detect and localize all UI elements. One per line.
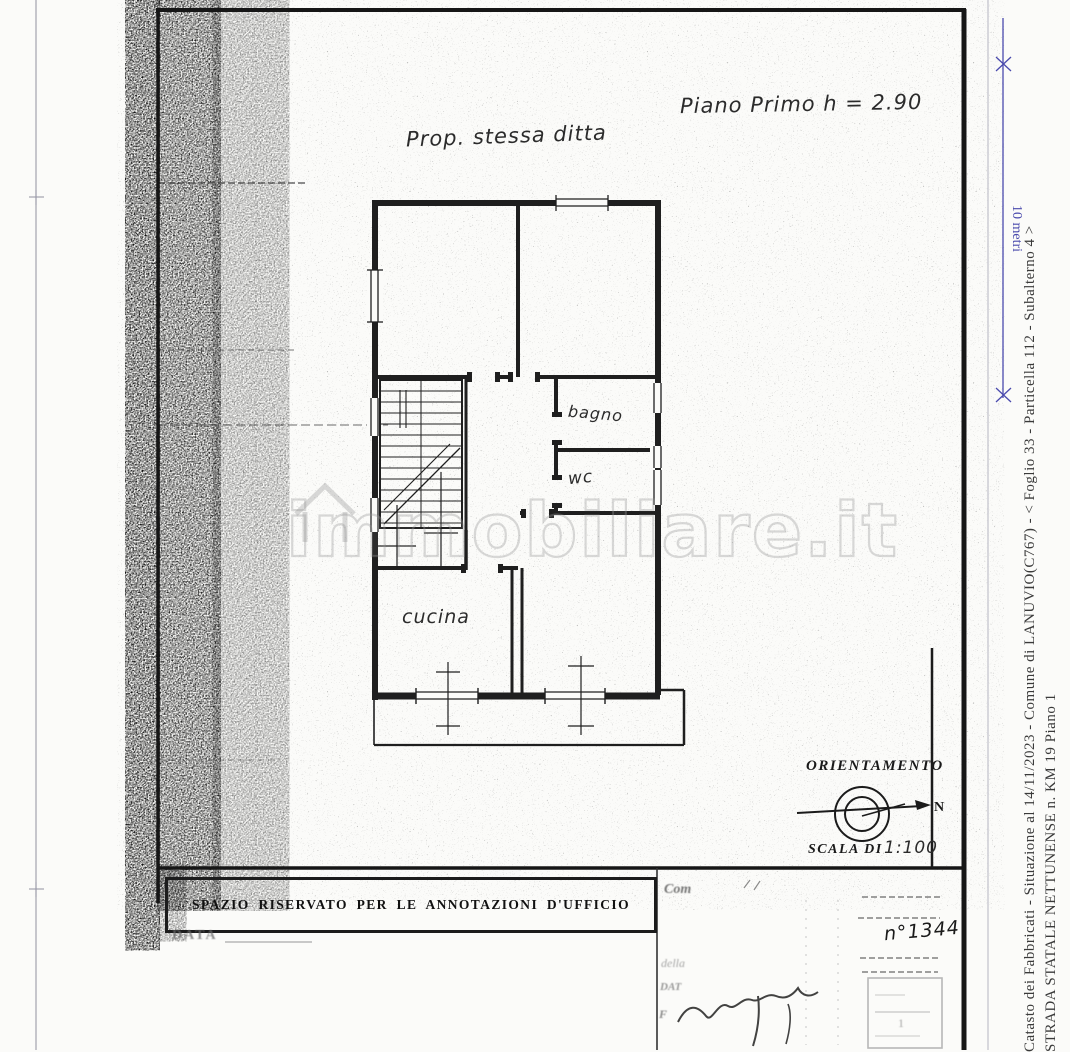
floor-title: Piano Primo h = 2.90 [680,90,923,118]
com-label: Com [664,882,691,898]
date-label: DATA [172,928,218,944]
della-label: della [661,956,685,971]
dat-label: DAT [660,981,681,993]
signature-scribble [678,880,818,1046]
orientation-title: ORIENTAMENTO [806,758,944,775]
room-label-cucina: cucina [402,606,470,628]
stamp-digit: 1 [898,1016,904,1031]
stamp-box [868,978,942,1048]
office-annotations-box: SPAZIO RISERVATO PER LE ANNOTAZIONI D'UF… [165,877,657,933]
scale-label: SCALA DI [808,842,883,858]
office-annotations-title: SPAZIO RISERVATO PER LE ANNOTAZIONI D'UF… [192,897,630,913]
north-label: N [934,800,944,816]
left-ruler [29,0,44,1050]
room-label-wc: wc [567,467,594,490]
scale-value: 1:100 [884,838,938,858]
firma-label: F [659,1007,667,1022]
side-caption-catasto: Catasto dei Fabbricati - Situazione al 1… [1022,292,1039,1052]
side-caption-address: STRADA STATALE NETTUNENSE n. KM 19 Piano… [1043,600,1060,1052]
scanned-cadastral-plan-page: { "watermark": { "text": "immobiliare.it… [0,0,1070,1050]
